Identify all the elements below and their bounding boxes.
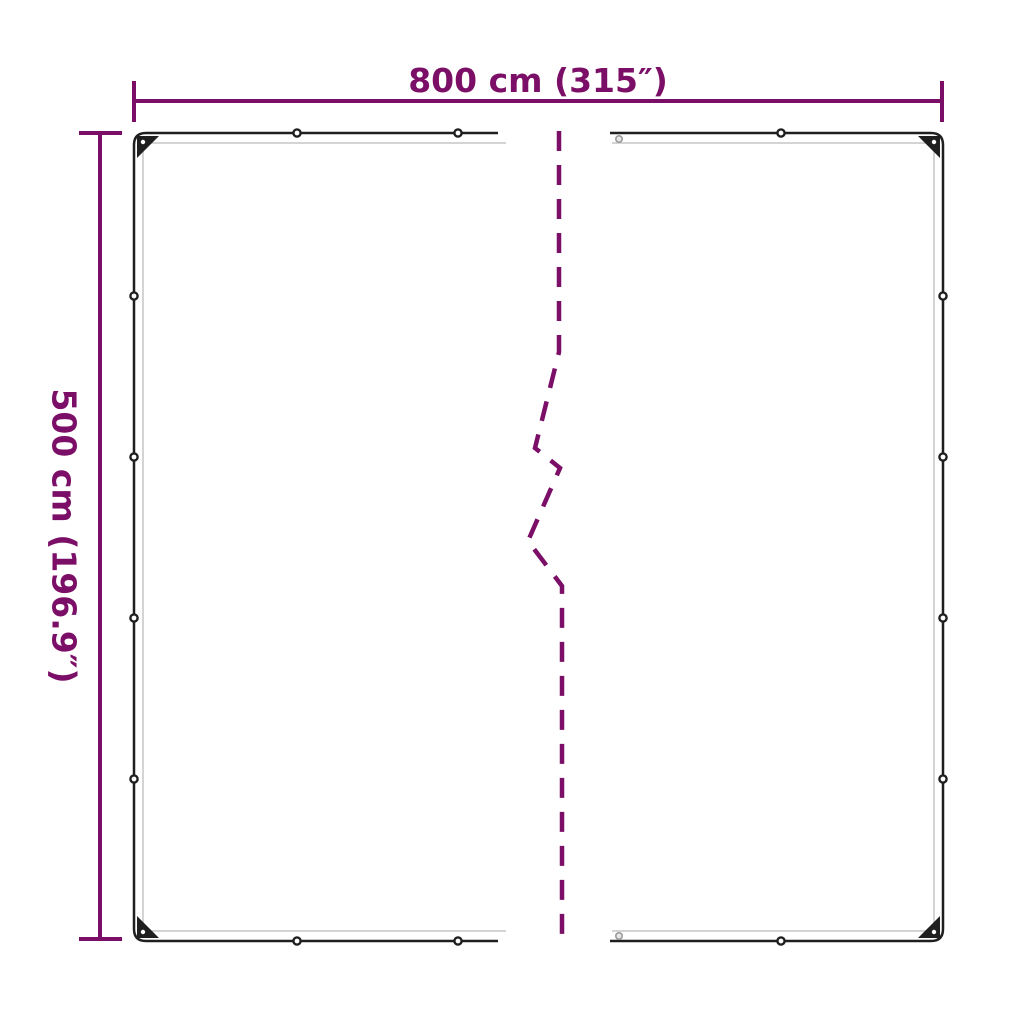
- grommet-icon: [130, 453, 137, 460]
- grommet-icon: [293, 129, 300, 136]
- grommet-icon: [939, 775, 946, 782]
- corner-patch-icon: [137, 916, 159, 938]
- tarp-left-outline: [134, 133, 498, 941]
- grommet-icon: [939, 453, 946, 460]
- width-dimension-label: 800 cm (315″): [408, 64, 668, 97]
- tarp-right-hem: [612, 143, 934, 931]
- height-dimension-label: 500 cm (196.9″): [48, 388, 81, 683]
- corner-grommet-icon: [141, 930, 145, 934]
- grommet-icon: [130, 614, 137, 621]
- corner-patch-icon: [918, 136, 940, 158]
- tarp-right-panel: [610, 129, 947, 944]
- grommet-icon: [130, 292, 137, 299]
- tarp-right-outline: [610, 133, 943, 941]
- grommet-icon: [777, 129, 784, 136]
- tarp-left-hem: [143, 143, 506, 931]
- diagram-canvas: [0, 0, 1024, 1024]
- grommet-icon: [454, 129, 461, 136]
- grommet-icon: [293, 937, 300, 944]
- grommet-icon: [616, 136, 622, 142]
- product-dimension-diagram: 800 cm (315″) 500 cm (196.9″): [0, 0, 1024, 1024]
- grommet-icon: [939, 292, 946, 299]
- grommet-icon: [616, 933, 622, 939]
- grommet-icon: [130, 775, 137, 782]
- grommet-icon: [454, 937, 461, 944]
- corner-grommet-icon: [932, 140, 936, 144]
- tarp-left-panel: [130, 129, 506, 944]
- corner-grommet-icon: [932, 930, 936, 934]
- grommet-icon: [939, 614, 946, 621]
- grommet-icon: [777, 937, 784, 944]
- corner-patch-icon: [137, 136, 159, 158]
- corner-patch-icon: [918, 916, 940, 938]
- height-dimension: [79, 133, 122, 939]
- break-line: [528, 131, 562, 945]
- corner-grommet-icon: [141, 140, 145, 144]
